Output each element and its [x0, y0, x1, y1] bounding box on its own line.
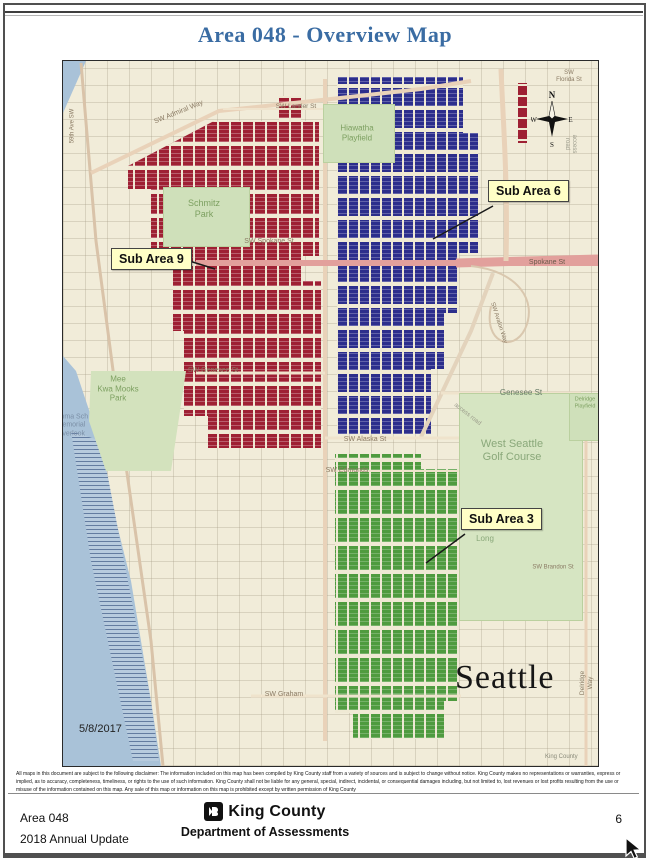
mouse-cursor-icon: [624, 837, 646, 860]
footer-update-year: 2018 Annual Update: [20, 829, 129, 850]
admiral-way-road: [91, 81, 471, 173]
compass-e: E: [568, 116, 572, 124]
harbor-ave-road: [501, 69, 506, 261]
footer-area-name: Area 048: [20, 808, 129, 829]
map-date: 5/8/2017: [79, 723, 122, 735]
footer-org-name: King County: [228, 803, 325, 821]
callout-sub-area-3: Sub Area 3: [461, 508, 542, 530]
compass-n: N: [549, 90, 556, 100]
callout-sub-area-6: Sub Area 6: [488, 180, 569, 202]
compass-w: W: [531, 116, 537, 124]
map-attribution: King County: [545, 754, 578, 760]
seattle-city-label: Seattle: [455, 659, 555, 697]
footer-dept-name: Department of Assessments: [150, 825, 380, 839]
document-page: Area 048 - Overview Map: [0, 0, 650, 860]
schmitz-park-area: [163, 187, 250, 247]
hiawatha-playfield-area: [323, 104, 395, 163]
top-rule: [5, 11, 643, 16]
compass-s: S: [550, 141, 554, 149]
king-county-logo-icon: [204, 802, 223, 821]
footer-org-block: King County Department of Assessments: [150, 802, 380, 839]
footer-divider: [8, 793, 639, 794]
page-title: Area 048 - Overview Map: [0, 22, 650, 48]
west-seattle-bridge-band: [456, 259, 598, 263]
footer-area-block: Area 048 2018 Annual Update: [20, 808, 129, 850]
compass-rose-icon: N E S W: [531, 89, 573, 151]
callout-sub-area-9: Sub Area 9: [111, 248, 192, 270]
map-disclaimer-text: All maps in this document are subject to…: [16, 770, 632, 794]
overview-map: Schmitz Park Hiawatha Playfield Mee Kwa …: [62, 60, 599, 767]
delridge-playfield-area: [569, 393, 599, 441]
golf-course-area: [459, 393, 583, 621]
page-number: 6: [615, 812, 622, 826]
